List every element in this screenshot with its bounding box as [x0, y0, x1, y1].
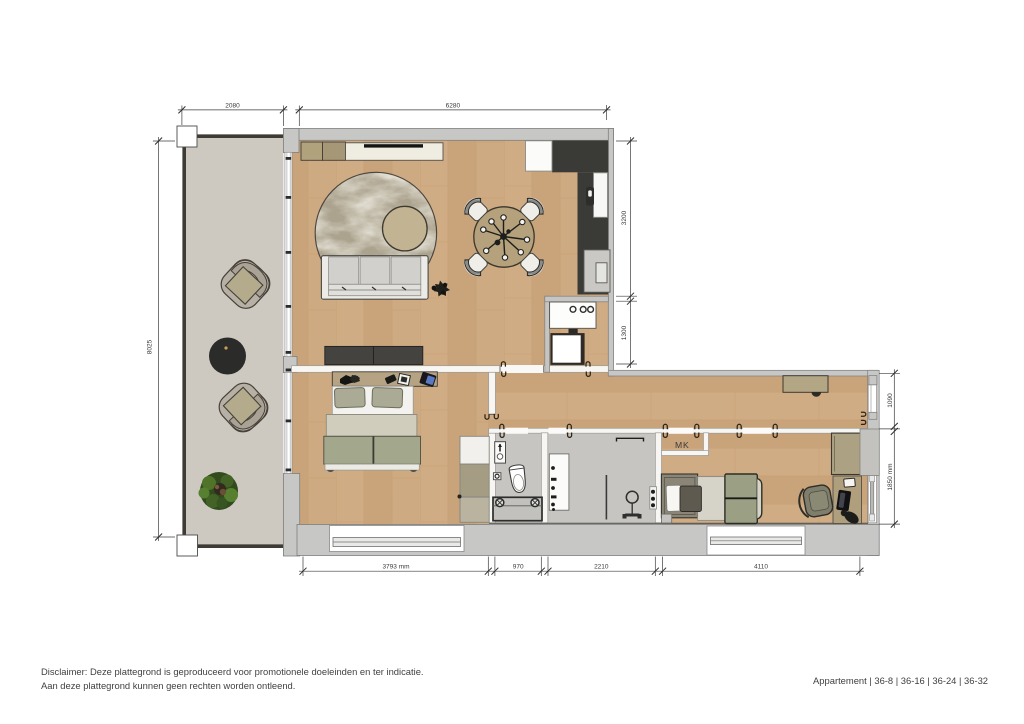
svg-text:4110: 4110	[754, 564, 768, 571]
svg-text:8025: 8025	[147, 339, 154, 354]
svg-text:1850 mm: 1850 mm	[887, 463, 894, 490]
svg-text:Appartement | 36-8 | 36-16 | 3: Appartement | 36-8 | 36-16 | 36-24 | 36-…	[813, 675, 988, 686]
svg-text:2080: 2080	[225, 102, 240, 109]
svg-text:3200: 3200	[621, 210, 628, 225]
svg-text:2210: 2210	[594, 564, 609, 571]
svg-text:970: 970	[513, 564, 524, 571]
svg-text:3793 mm: 3793 mm	[382, 564, 409, 571]
svg-text:1300: 1300	[621, 325, 628, 340]
svg-text:MK: MK	[675, 440, 690, 450]
svg-text:1090: 1090	[887, 393, 894, 408]
svg-text:Aan deze plattegrond kunnen ge: Aan deze plattegrond kunnen geen rechten…	[41, 680, 295, 691]
svg-text:6280: 6280	[446, 102, 461, 109]
svg-text:Disclaimer: Deze plattegrond i: Disclaimer: Deze plattegrond is geproduc…	[41, 666, 424, 677]
